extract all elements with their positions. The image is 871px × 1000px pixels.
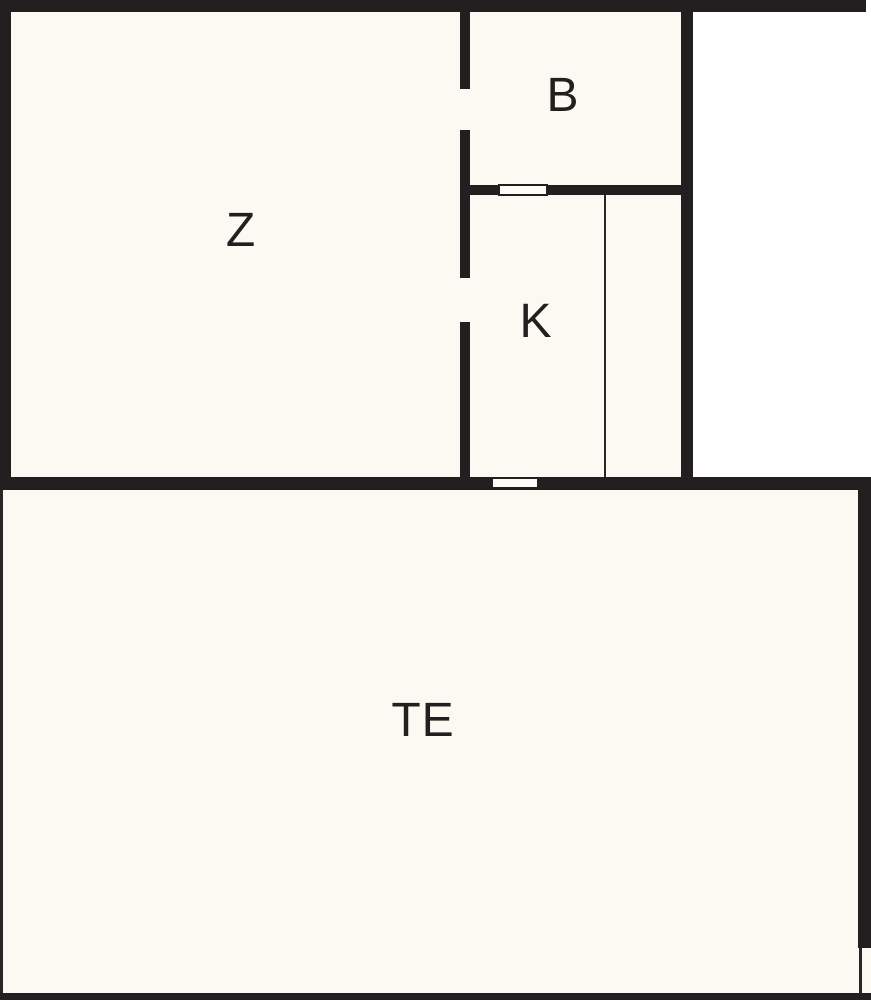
room-label-z: Z	[226, 207, 256, 255]
boundary-line-te-left	[0, 490, 3, 1000]
divider-wall-z-segment-bottom	[460, 322, 470, 477]
room-label-te: TE	[391, 697, 454, 745]
divider-wall-z-segment-top	[460, 12, 470, 89]
floorplan-canvas: Z B K TE	[0, 0, 871, 1000]
partition-line-k-right	[604, 195, 606, 477]
exterior-wall-left-upper	[0, 0, 11, 477]
exterior-wall-top	[0, 0, 866, 12]
room-label-b: B	[546, 72, 579, 120]
boundary-line-te-bottom	[0, 993, 871, 1000]
room-label-k: K	[519, 298, 552, 346]
wall-b-k-divider	[460, 185, 693, 195]
door-opening-k-te	[491, 477, 539, 489]
door-opening-b-k	[498, 184, 548, 196]
divider-wall-z-segment-middle	[460, 130, 470, 278]
exterior-wall-right-upper	[681, 12, 693, 490]
wall-te-right-thick	[858, 477, 871, 948]
wall-upper-unit-bottom	[0, 477, 871, 490]
upper-unit-floor	[0, 0, 693, 490]
